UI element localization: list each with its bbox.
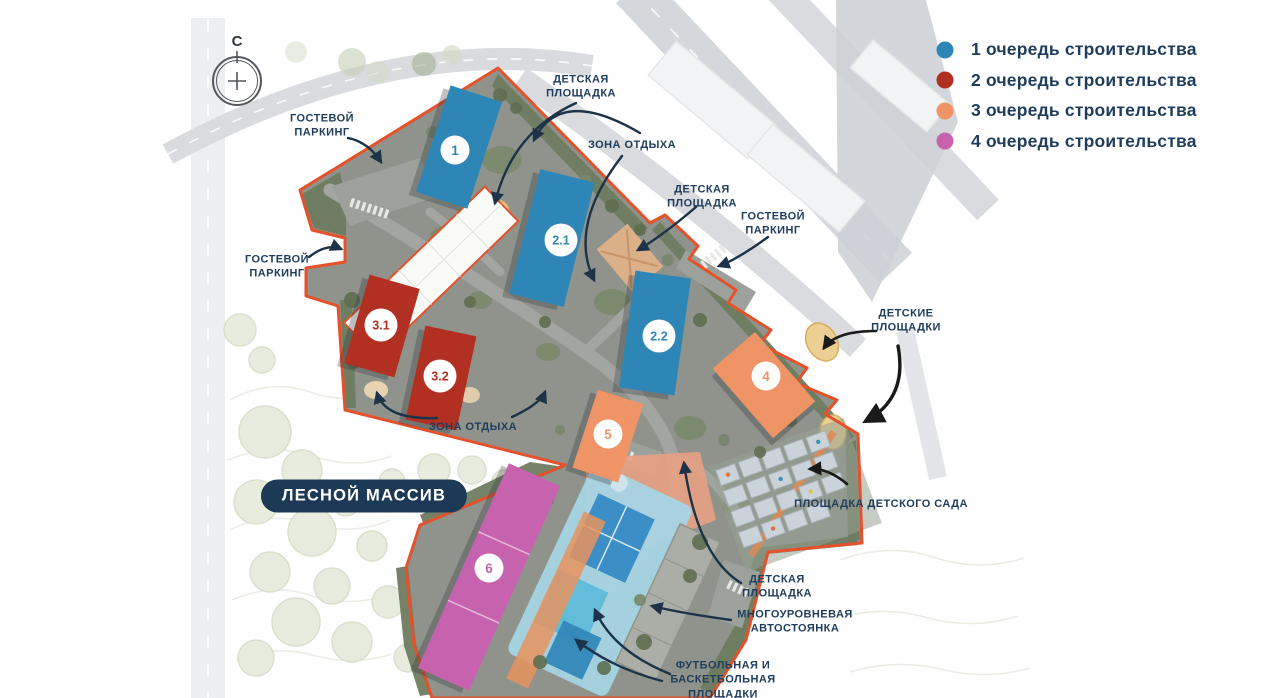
legend-item-phase-1: 1 очередь строительства [936,39,1197,60]
svg-text:3.2: 3.2 [431,370,448,384]
legend-item-phase-2: 2 очередь строительства [936,70,1197,91]
label-guest-parking-right: ГОСТЕВОЙ ПАРКИНГ [725,210,821,239]
construction-phase-legend: 1 очередь строительства 2 очередь строит… [936,39,1197,152]
label-playground-bottom: ДЕТСКАЯ ПЛОЩАДКА [724,573,830,602]
compass-north-letter: С [209,33,265,50]
label-kindergarten-area: ПЛОЩАДКА ДЕТСКОГО САДА [791,497,971,511]
badge-building-1: 1 [441,136,470,165]
badge-building-6: 6 [475,554,504,583]
label-guest-parking-left: ГОСТЕВОЙ ПАРКИНГ [229,253,325,282]
legend-item-phase-3: 3 очередь строительства [936,100,1197,121]
phase-1-dot-icon [936,41,954,59]
svg-text:5: 5 [604,427,612,442]
label-sports-grounds: ФУТБОЛЬНАЯ И БАСКЕТБОЛЬНАЯ ПЛОЩАДКИ [638,659,808,698]
legend-label: 2 очередь строительства [971,70,1197,91]
svg-text:1: 1 [451,143,459,158]
phase-3-dot-icon [936,102,954,120]
label-rest-area-top: ЗОНА ОТДЫХА [588,138,676,152]
label-rest-area-bottom: ЗОНА ОТДЫХА [429,420,517,434]
svg-text:2.2: 2.2 [650,330,667,344]
badge-building-5: 5 [594,420,623,449]
badge-building-2-1: 2.1 [545,224,578,257]
label-playground-top: ДЕТСКАЯ ПЛОЩАДКА [528,73,634,102]
badge-building-4: 4 [752,362,781,391]
svg-text:4: 4 [762,369,770,384]
label-playground-mid: ДЕТСКАЯ ПЛОЩАДКА [649,183,755,212]
compass: С [209,33,265,112]
site-plan-page: 1 2.1 2.2 3.1 3.2 4 5 6 [0,0,1280,698]
legend-label: 4 очередь строительства [971,131,1197,152]
badge-building-3-1: 3.1 [365,309,398,342]
phase-4-dot-icon [936,132,954,150]
badge-building-3-2: 3.2 [424,360,457,393]
legend-item-phase-4: 4 очередь строительства [936,131,1197,152]
phase-2-dot-icon [936,71,954,89]
badge-building-2-2: 2.2 [643,320,676,353]
forest-area-badge: ЛЕСНОЙ МАССИВ [261,480,467,513]
label-guest-parking-top: ГОСТЕВОЙ ПАРКИНГ [274,112,370,141]
compass-icon [209,51,265,107]
legend-label: 1 очередь строительства [971,39,1197,60]
label-playgrounds-right: ДЕТСКИЕ ПЛОЩАДКИ [848,307,964,336]
legend-label: 3 очередь строительства [971,100,1197,121]
svg-text:3.1: 3.1 [372,319,389,333]
label-multilevel-parking: МНОГОУРОВНЕВАЯ АВТОСТОЯНКА [700,608,890,637]
svg-text:6: 6 [485,561,493,576]
svg-text:2.1: 2.1 [552,234,569,248]
